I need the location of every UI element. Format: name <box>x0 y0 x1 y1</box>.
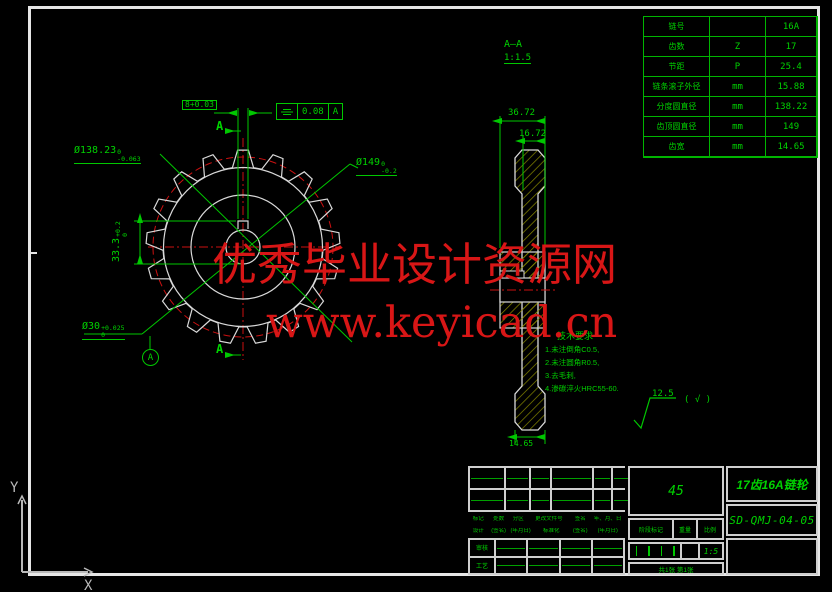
note-item: 3.去毛刺, <box>545 369 619 382</box>
param-value: 138.22 <box>765 96 817 117</box>
param-label: 齿顶圆直径 <box>643 116 710 137</box>
tb-label: 设计 <box>468 528 488 534</box>
section-arrow-label-top: A <box>216 121 223 131</box>
pitch-dia-sub: -0.063 <box>117 156 140 163</box>
tb-label: (签名) <box>570 528 590 534</box>
title-block: 标记 处数 分区 更改文件号 签名 年、月、日 设计 (签名) (年月日) 标准… <box>468 466 818 575</box>
keyway-width-dim: 8+0.03 <box>182 100 217 110</box>
tb-label: 标记 <box>468 516 488 522</box>
param-symbol: mm <box>709 96 766 117</box>
tb-label-shenhe: 审核 <box>470 540 494 556</box>
roughness-others: ( √ ) <box>684 396 711 404</box>
tb-label: 标准化 <box>532 528 570 534</box>
symmetry-tolerance-frame: 0.08 A <box>276 103 343 120</box>
ucs-y-label: Y <box>10 480 18 496</box>
revision-grid <box>468 466 625 512</box>
signature-grid: 审核 工艺 <box>468 538 625 575</box>
section-arrow-label-bottom: A <box>216 344 223 354</box>
param-value: 16A <box>765 16 817 37</box>
tb-label-scale: 比例 <box>698 520 722 538</box>
blank-cell <box>726 538 818 575</box>
signature-ticks <box>630 544 680 558</box>
tb-label-gongyi: 工艺 <box>470 558 494 574</box>
param-label: 链条滚子外径 <box>643 76 710 97</box>
section-label: A—A <box>504 40 522 50</box>
keyway-depth-sub: 0 <box>122 221 129 237</box>
sprocket-parameter-table: 链号 16A 齿数 Z 17 节距 P 25.4 链条滚子外径 mm 15.88… <box>643 16 818 158</box>
stage-row: 阶段标记 重量 比例 <box>628 518 724 540</box>
param-label: 分度圆直径 <box>643 96 710 117</box>
tb-label: 签名 <box>570 516 590 522</box>
roughness-value: 12.5 <box>652 390 674 398</box>
watermark-line2: www.keyicad.cn <box>266 298 617 348</box>
note-item: 4.渗碳淬火HRC55-60. <box>545 382 619 395</box>
drawing-number: SD-QMJ-04-05 <box>726 504 818 536</box>
tolerance-datum: A <box>328 104 342 119</box>
bore-diameter-dim: Ø30+0.0250 <box>82 322 125 340</box>
part-name: 17齿16A链轮 <box>726 466 818 502</box>
param-label: 节距 <box>643 56 710 77</box>
sheet-count: 共1张 第1张 <box>628 562 724 575</box>
tb-label-weight: 重量 <box>674 520 696 538</box>
tb-label: (年月日) <box>509 528 533 534</box>
section-width-rim-dim: 16.72 <box>519 130 546 138</box>
pitch-diameter-dim: Ø138.230-0.063 <box>74 146 141 164</box>
note-item: 2.未注圆角R0.5, <box>545 356 619 369</box>
tip-dia-base: Ø149 <box>356 157 380 168</box>
param-value: 17 <box>765 36 817 57</box>
param-symbol: mm <box>709 116 766 137</box>
titleblock-label-row2: 设计 (签名) (年月日) 标准化 (签名) (年月日) <box>468 525 625 537</box>
tb-label: 分区 <box>509 516 528 522</box>
param-label: 齿数 <box>643 36 710 57</box>
section-width-total-dim: 36.72 <box>508 109 535 117</box>
cad-canvas: Y X Ø138.230-0.063 8+0.03 0.08 A A A Ø14… <box>0 0 832 592</box>
section-scale: 1:1.5 <box>504 54 531 64</box>
roughness-icon <box>634 398 676 428</box>
tip-dia-sub: -0.2 <box>381 168 397 175</box>
param-value: 15.88 <box>765 76 817 97</box>
datum-a-bubble: A <box>142 349 159 366</box>
tb-label: (年月日) <box>590 528 625 534</box>
tb-label: 年、月、日 <box>590 516 625 522</box>
tolerance-value: 0.08 <box>297 104 328 119</box>
tip-diameter-dim: Ø1490-0.2 <box>356 158 397 176</box>
watermark-line1: 优秀毕业设计资源网 <box>212 228 617 293</box>
param-symbol <box>709 16 766 37</box>
titleblock-label-row1: 标记 处数 分区 更改文件号 签名 年、月、日 <box>468 513 625 525</box>
bore-dia-base: Ø30 <box>82 321 100 332</box>
tb-label: 处数 <box>488 516 508 522</box>
tb-label-stage: 阶段标记 <box>630 520 672 538</box>
keyway-depth-dim: 33.3+0.20 <box>112 221 128 262</box>
pitch-dia-base: Ø138.23 <box>74 145 116 156</box>
param-label: 齿宽 <box>643 136 710 157</box>
param-symbol: P <box>709 56 766 77</box>
scale-value: 1:5 <box>700 544 722 558</box>
symmetry-icon <box>277 104 297 119</box>
param-label: 链号 <box>643 16 710 37</box>
ucs-icon <box>18 496 92 576</box>
tb-label: 更改文件号 <box>528 516 570 522</box>
param-value: 149 <box>765 116 817 137</box>
param-value: 14.65 <box>765 136 817 157</box>
tb-label: (签名) <box>488 528 508 534</box>
bore-dia-sub: 0 <box>101 332 124 339</box>
param-value: 25.4 <box>765 56 817 77</box>
material-cell: 45 <box>628 466 724 516</box>
tooth-width-dim: 14.65 <box>509 440 533 448</box>
ucs-x-label: X <box>84 578 92 592</box>
param-symbol: Z <box>709 36 766 57</box>
keyway-depth-base: 33.3 <box>111 238 122 262</box>
param-symbol: mm <box>709 136 766 157</box>
tick-row: 1:5 <box>628 542 724 560</box>
param-symbol: mm <box>709 76 766 97</box>
